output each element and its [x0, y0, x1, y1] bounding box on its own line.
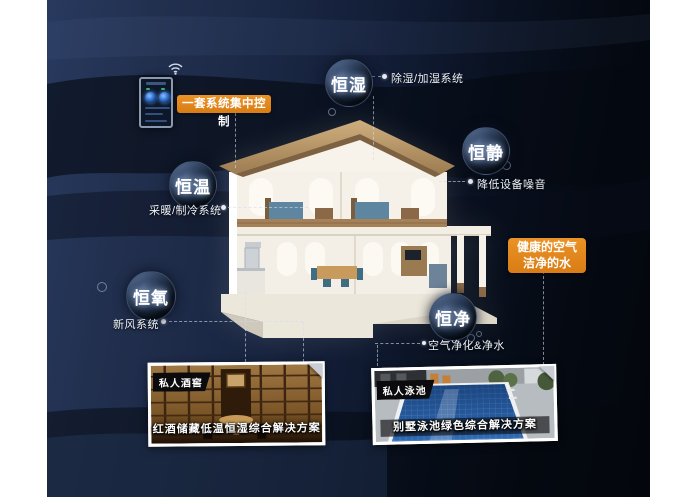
mini-bubble [97, 282, 107, 292]
note-fresh-air-system: 新风系统 [113, 316, 159, 332]
panel-readout [145, 113, 163, 115]
connector-dot-humid [382, 74, 387, 79]
connector-dot-oxygen [161, 319, 166, 324]
connector-humid-h [372, 76, 381, 77]
bubble-label: 恒温 [175, 173, 211, 198]
connector-quiet-h [439, 181, 465, 182]
connector-clean-v [377, 345, 378, 366]
connector-humid-v [373, 96, 374, 160]
note-humidity-system: 除湿/加湿系统 [391, 70, 464, 86]
bubble-label: 恒湿 [331, 71, 367, 96]
bubble-constant-clean: 恒净 [429, 293, 477, 341]
note-noise-reduction: 降低设备噪音 [477, 176, 546, 192]
connector-controller [235, 113, 236, 168]
healthy-air-line2: 洁净的水 [508, 255, 586, 271]
connector-highlight-v [543, 271, 544, 365]
note-hvac-system: 采暖/制冷系统 [149, 202, 222, 218]
panel-readout [145, 120, 167, 122]
connector-clean-h [375, 343, 420, 344]
poster-canvas: 一套系统集中控制 健康的空气 洁净的水 恒湿 除湿/加湿系统 恒静 降低设备噪音… [0, 0, 700, 497]
connector-dot-clean [422, 341, 426, 345]
bubble-label: 恒净 [435, 305, 471, 330]
bubble-label: 恒氧 [133, 284, 169, 309]
dark-stage: 一套系统集中控制 健康的空气 洁净的水 恒湿 除湿/加湿系统 恒静 降低设备噪音… [47, 0, 650, 497]
pool-card: 私人泳池 别墅泳池绿色综合解决方案 [371, 364, 558, 445]
connector-house-v [245, 292, 246, 362]
panel-dial [145, 92, 156, 103]
card-tag: 私人酒窖 [153, 372, 211, 392]
connector-temp-h [228, 207, 308, 208]
note-purification-system: 空气净化&净水 [428, 337, 505, 353]
central-control-callout: 一套系统集中控制 [177, 95, 271, 113]
healthy-air-callout: 健康的空气 洁净的水 [508, 238, 586, 273]
wine-cellar-card: 私人酒窖 红酒储藏低温恒湿综合解决方案 [148, 361, 326, 447]
connector-dot-quiet [468, 179, 473, 184]
connector-oxygen-h [169, 321, 303, 322]
card-caption: 红酒储藏低温恒湿综合解决方案 [151, 419, 322, 436]
panel-header [146, 82, 166, 85]
panel-led [146, 88, 150, 90]
bubble-label: 恒静 [468, 139, 504, 164]
connector-oxygen-v [303, 322, 304, 362]
mini-bubble [328, 108, 336, 116]
card-tag: 私人泳池 [376, 380, 434, 400]
healthy-air-line1: 健康的空气 [508, 239, 586, 255]
bubble-constant-humidity: 恒湿 [325, 59, 373, 107]
panel-readout [145, 107, 170, 109]
panel-led [161, 88, 165, 90]
bubble-constant-oxygen: 恒氧 [126, 271, 176, 321]
corner-fold [308, 363, 323, 378]
bubble-constant-quiet: 恒静 [462, 127, 510, 175]
wifi-icon [167, 61, 184, 75]
corner-fold [539, 366, 554, 381]
panel-dial [159, 92, 170, 103]
smart-control-panel-icon [139, 77, 173, 128]
